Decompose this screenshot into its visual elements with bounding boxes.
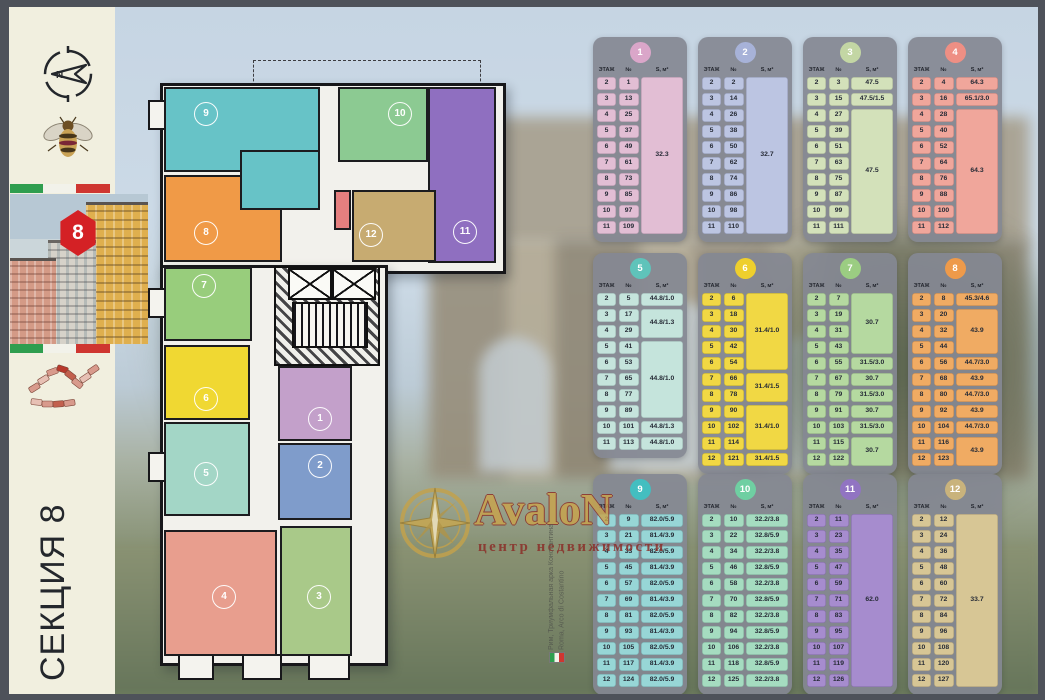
floor-cell: 3 xyxy=(702,530,721,543)
apartment-number-cell: 106 xyxy=(724,642,744,655)
floor-cell: 2 xyxy=(702,514,721,527)
header-num: № xyxy=(934,282,954,290)
apartment-number-cell: 97 xyxy=(619,205,639,218)
floor-cell: 5 xyxy=(912,341,931,354)
floor-cell: 8 xyxy=(702,389,721,402)
apartment-number-cell: 93 xyxy=(619,626,639,639)
area-cell: 33.7 xyxy=(956,514,998,687)
photo-caption: Рим, Триумфальная арка Константина Roma,… xyxy=(547,440,568,650)
apartment-number-cell: 37 xyxy=(619,125,639,138)
header-area: S, м² xyxy=(746,66,788,74)
area-cell: 32.8/5.9 xyxy=(746,658,788,671)
apartment-number-cell: 115 xyxy=(829,437,849,450)
table-header: ЭТАЖ№S, м² xyxy=(912,503,998,511)
sidebar: N 8 xyxy=(9,7,115,694)
apartment-number-cell: 103 xyxy=(829,421,849,434)
apartment-number-cell: 8 xyxy=(934,293,954,306)
table-header: ЭТАЖ№S, м² xyxy=(807,503,893,511)
area-cell: 44.7/3.0 xyxy=(956,357,998,370)
apartment-number-cell: 107 xyxy=(829,642,849,655)
caption-line-ru: Рим, Триумфальная арка Константина xyxy=(547,440,558,650)
apartment-number-cell: 32 xyxy=(934,325,954,338)
floor-cell: 10 xyxy=(702,642,721,655)
apartment-number-cell: 47 xyxy=(829,562,849,575)
floor-cell: 11 xyxy=(702,658,721,671)
apartment-number-cell: 39 xyxy=(829,125,849,138)
floor-cell: 6 xyxy=(597,578,616,591)
apartment-7-number: 7 xyxy=(192,274,216,298)
area-column: 32.3 xyxy=(641,77,683,237)
area-cell: 32.2/3.8 xyxy=(746,578,788,591)
apartment-number-cell: 89 xyxy=(619,405,639,418)
floor-cell: 7 xyxy=(807,157,826,170)
table-number-badge: 11 xyxy=(840,479,861,500)
number-column: 517294153657789101113 xyxy=(619,293,639,453)
apartment-number-cell: 80 xyxy=(934,389,954,402)
number-column: 1022344658708294106118125 xyxy=(724,514,744,690)
floor-cell: 10 xyxy=(807,642,826,655)
floor-cell: 7 xyxy=(702,157,721,170)
table-header: ЭТАЖ№S, м² xyxy=(702,503,788,511)
table-body: 2345678910111271931435567799110311512230… xyxy=(807,293,893,469)
area-cell: 31.5/3.0 xyxy=(851,389,893,402)
floor-cell: 12 xyxy=(912,674,931,687)
apartment-number-cell: 2 xyxy=(724,77,744,90)
header-area: S, м² xyxy=(746,282,788,290)
header-floor: ЭТАЖ xyxy=(702,282,721,290)
floor-column: 23456789101112 xyxy=(912,293,931,469)
floor-cell: 4 xyxy=(912,109,931,122)
apartment-number-cell: 79 xyxy=(829,389,849,402)
floor-cell: 2 xyxy=(597,514,616,527)
apartment-number-cell: 51 xyxy=(829,141,849,154)
apartment-10-area xyxy=(338,87,428,162)
number-column: 31527395163758799111 xyxy=(829,77,849,237)
apartment-number-cell: 86 xyxy=(724,189,744,202)
area-cell: 82.0/5.9 xyxy=(641,514,683,527)
floor-cell: 3 xyxy=(597,93,616,106)
floor-column: 234567891011 xyxy=(702,77,721,237)
floor-cell: 4 xyxy=(702,325,721,338)
apartment-3-number: 3 xyxy=(307,585,331,609)
apartment-number-cell: 36 xyxy=(934,546,954,559)
area-cell: 44.8/1.0 xyxy=(641,437,683,450)
apartment-number-cell: 40 xyxy=(934,125,954,138)
floor-cell: 10 xyxy=(807,205,826,218)
apartment-number-cell: 49 xyxy=(619,141,639,154)
area-cell: 81.4/3.9 xyxy=(641,658,683,671)
apartment-number-cell: 21 xyxy=(619,530,639,543)
apartment-number-cell: 34 xyxy=(724,546,744,559)
header-area: S, м² xyxy=(746,503,788,511)
area-cell: 44.8/1.3 xyxy=(641,421,683,434)
apartment-number-cell: 74 xyxy=(724,173,744,186)
apartment-number-cell: 31 xyxy=(829,325,849,338)
floor-cell: 6 xyxy=(702,141,721,154)
svg-text:N: N xyxy=(56,70,63,81)
area-cell: 81.4/3.9 xyxy=(641,594,683,607)
area-cell: 44.8/1.0 xyxy=(641,341,683,418)
apartment-number-cell: 53 xyxy=(619,357,639,370)
header-area: S, м² xyxy=(956,282,998,290)
floor-cell: 7 xyxy=(597,373,616,386)
floor-cell: 3 xyxy=(702,309,721,322)
apartment-11-number: 11 xyxy=(453,220,477,244)
floor-cell: 9 xyxy=(597,405,616,418)
floor-cell: 8 xyxy=(597,610,616,623)
header-floor: ЭТАЖ xyxy=(702,503,721,511)
apartment-number-cell: 114 xyxy=(724,437,744,450)
floor-cell: 6 xyxy=(912,357,931,370)
floor-cell: 3 xyxy=(912,309,931,322)
floor-cell: 8 xyxy=(807,610,826,623)
elevator-shaft xyxy=(332,268,376,300)
area-cell: 32.8/5.9 xyxy=(746,530,788,543)
floor-column: 23456789101112 xyxy=(912,514,931,690)
area-column: 32.2/3.832.8/5.932.2/3.832.8/5.932.2/3.8… xyxy=(746,514,788,690)
floor-cell: 3 xyxy=(597,309,616,322)
apartment-number-cell: 127 xyxy=(934,674,954,687)
floor-cell: 4 xyxy=(912,546,931,559)
floor-cell: 5 xyxy=(807,125,826,138)
apartment-number-cell: 71 xyxy=(829,594,849,607)
apartment-number-cell: 113 xyxy=(619,437,639,450)
apartment-table-8: 8ЭТАЖ№S, м²23456789101112820324456688092… xyxy=(908,253,1002,474)
apartment-number-cell: 22 xyxy=(724,530,744,543)
header-floor: ЭТАЖ xyxy=(912,503,931,511)
floor-cell: 4 xyxy=(912,325,931,338)
floor-cell: 4 xyxy=(597,546,616,559)
apartment-number-cell: 41 xyxy=(619,341,639,354)
area-cell: 64.3 xyxy=(956,109,998,234)
floor-column: 234567891011 xyxy=(597,293,616,453)
area-cell: 65.1/3.0 xyxy=(956,93,998,106)
area-column: 45.3/4.643.944.7/3.043.944.7/3.043.944.7… xyxy=(956,293,998,469)
floor-cell: 2 xyxy=(702,77,721,90)
bee-icon xyxy=(42,115,94,163)
area-cell: 32.2/3.8 xyxy=(746,674,788,687)
apartment-number-cell: 100 xyxy=(934,205,954,218)
floor-cell: 3 xyxy=(807,309,826,322)
area-cell: 82.0/5.9 xyxy=(641,642,683,655)
frame-right xyxy=(1038,0,1045,700)
floor-cell: 4 xyxy=(702,546,721,559)
area-cell: 43.9 xyxy=(956,437,998,466)
floor-cell: 3 xyxy=(597,530,616,543)
area-column: 31.4/1.031.4/1.531.4/1.031.4/1.5 xyxy=(746,293,788,469)
apartment-number-cell: 15 xyxy=(829,93,849,106)
area-cell: 47.5 xyxy=(851,77,893,90)
table-header: ЭТАЖ№S, м² xyxy=(807,66,893,74)
floor-cell: 9 xyxy=(912,405,931,418)
apartment-10-number: 10 xyxy=(388,102,412,126)
floor-cell: 4 xyxy=(597,325,616,338)
header-area: S, м² xyxy=(851,503,893,511)
apartment-table-2: 2ЭТАЖ№S, м²23456789101121426385062748698… xyxy=(698,37,792,242)
floor-cell: 5 xyxy=(597,562,616,575)
apartment-number-cell: 52 xyxy=(934,141,954,154)
header-area: S, м² xyxy=(851,282,893,290)
area-cell: 45.3/4.6 xyxy=(956,293,998,306)
floor-cell: 8 xyxy=(597,389,616,402)
apartment-number-cell: 120 xyxy=(934,658,954,671)
floor-cell: 10 xyxy=(702,421,721,434)
apartment-number-cell: 102 xyxy=(724,421,744,434)
floor-cell: 10 xyxy=(807,421,826,434)
arch-opening-left xyxy=(479,337,551,472)
apartment-number-cell: 35 xyxy=(829,546,849,559)
apartment-number-cell: 82 xyxy=(724,610,744,623)
header-area: S, м² xyxy=(641,503,683,511)
floor-cell: 10 xyxy=(912,205,931,218)
apartment-number-cell: 101 xyxy=(619,421,639,434)
apartment-number-cell: 23 xyxy=(829,530,849,543)
header-area: S, м² xyxy=(641,282,683,290)
apartment-number-cell: 76 xyxy=(934,173,954,186)
apartment-number-cell: 117 xyxy=(619,658,639,671)
frame-left xyxy=(0,0,9,700)
number-column: 921334557698193105117124 xyxy=(619,514,639,690)
table-body: 2345678910113152739516375879911147.547.5… xyxy=(807,77,893,237)
apartment-number-cell: 16 xyxy=(934,93,954,106)
table-number-badge: 12 xyxy=(945,479,966,500)
elevator-shaft xyxy=(288,268,332,300)
area-cell: 32.8/5.9 xyxy=(746,594,788,607)
apartment-12-number: 12 xyxy=(359,223,383,247)
floor-cell: 6 xyxy=(702,578,721,591)
frame-bottom xyxy=(0,694,1045,700)
apartment-number-cell: 14 xyxy=(724,93,744,106)
apartment-number-cell: 30 xyxy=(724,325,744,338)
table-header: ЭТАЖ№S, м² xyxy=(807,282,893,290)
area-cell: 82.0/5.9 xyxy=(641,674,683,687)
floor-cell: 5 xyxy=(807,562,826,575)
floor-cell: 9 xyxy=(912,189,931,202)
floor-cell: 10 xyxy=(597,421,616,434)
apartment-number-cell: 29 xyxy=(619,325,639,338)
apartment-8-number: 8 xyxy=(194,221,218,245)
number-column: 1123354759718395107119126 xyxy=(829,514,849,690)
apartment-number-cell: 118 xyxy=(724,658,744,671)
apartment-number-cell: 95 xyxy=(829,626,849,639)
header-floor: ЭТАЖ xyxy=(807,503,826,511)
building-pink xyxy=(10,258,56,344)
floor-cell: 8 xyxy=(912,389,931,402)
apartment-number-cell: 27 xyxy=(829,109,849,122)
number-column: 416284052647688100112 xyxy=(934,77,954,237)
table-header: ЭТАЖ№S, м² xyxy=(597,66,683,74)
floor-cell: 11 xyxy=(912,658,931,671)
apartment-number-cell: 57 xyxy=(619,578,639,591)
italy-flag-bottom xyxy=(10,344,110,353)
floor-cell: 7 xyxy=(702,594,721,607)
apartment-4-number: 4 xyxy=(212,585,236,609)
apartment-number-cell: 87 xyxy=(829,189,849,202)
floor-cell: 4 xyxy=(702,109,721,122)
apartment-number-cell: 125 xyxy=(724,674,744,687)
header-num: № xyxy=(724,282,744,290)
floor-cell: 9 xyxy=(912,626,931,639)
header-num: № xyxy=(619,282,639,290)
area-column: 62.0 xyxy=(851,514,893,690)
apartment-number-cell: 75 xyxy=(829,173,849,186)
floor-cell: 7 xyxy=(912,594,931,607)
apartment-9-area xyxy=(240,150,320,210)
apartment-number-cell: 99 xyxy=(829,205,849,218)
floor-cell: 3 xyxy=(702,93,721,106)
header-num: № xyxy=(724,66,744,74)
apartment-number-cell: 94 xyxy=(724,626,744,639)
apartment-number-cell: 69 xyxy=(619,594,639,607)
apartment-number-cell: 98 xyxy=(724,205,744,218)
apartment-number-cell: 72 xyxy=(934,594,954,607)
floor-column: 23456789101112 xyxy=(702,514,721,690)
area-cell: 44.7/3.0 xyxy=(956,389,998,402)
floor-cell: 8 xyxy=(807,389,826,402)
table-number-badge: 9 xyxy=(630,479,651,500)
area-cell: 82.0/5.9 xyxy=(641,610,683,623)
floor-cell: 10 xyxy=(912,642,931,655)
area-cell: 43.9 xyxy=(956,373,998,386)
area-cell: 30.7 xyxy=(851,405,893,418)
floor-cell: 8 xyxy=(702,173,721,186)
apartment-number-cell: 56 xyxy=(934,357,954,370)
floor-cell: 5 xyxy=(912,125,931,138)
table-body: 2345678910111132537496173859710932.3 xyxy=(597,77,683,237)
floor-column: 23456789101112 xyxy=(807,293,826,469)
floor-cell: 2 xyxy=(807,514,826,527)
apartment-number-cell: 67 xyxy=(829,373,849,386)
header-area: S, м² xyxy=(851,66,893,74)
floor-cell: 8 xyxy=(597,173,616,186)
area-cell: 47.5 xyxy=(851,109,893,234)
table-header: ЭТАЖ№S, м² xyxy=(702,66,788,74)
apartment-number-cell: 90 xyxy=(724,405,744,418)
floor-cell: 9 xyxy=(702,189,721,202)
floor-cell: 11 xyxy=(807,221,826,234)
apartment-number-cell: 61 xyxy=(619,157,639,170)
floor-cell: 12 xyxy=(597,674,616,687)
table-body: 2345678910111261830425466789010211412131… xyxy=(702,293,788,469)
number-column: 21426385062748698110 xyxy=(724,77,744,237)
area-cell: 32.8/5.9 xyxy=(746,626,788,639)
area-cell: 82.0/5.9 xyxy=(641,578,683,591)
floor-column: 234567891011 xyxy=(912,77,931,237)
floor-cell: 4 xyxy=(597,109,616,122)
floor-cell: 5 xyxy=(702,125,721,138)
area-cell: 31.4/1.5 xyxy=(746,453,788,466)
floor-column: 234567891011 xyxy=(807,77,826,237)
floor-cell: 10 xyxy=(597,205,616,218)
apartment-number-cell: 26 xyxy=(724,109,744,122)
apartment-number-cell: 12 xyxy=(934,514,954,527)
table-body: 2345678910111282032445668809210411612345… xyxy=(912,293,998,469)
apartment-number-cell: 123 xyxy=(934,453,954,466)
floor-cell: 10 xyxy=(912,421,931,434)
apartment-number-cell: 18 xyxy=(724,309,744,322)
floor-cell: 8 xyxy=(702,610,721,623)
floor-cell: 9 xyxy=(807,189,826,202)
apartment-number-cell: 73 xyxy=(619,173,639,186)
section-title: СЕКЦИЯ 8 xyxy=(35,421,72,681)
header-floor: ЭТАЖ xyxy=(597,66,616,74)
apartment-number-cell: 3 xyxy=(829,77,849,90)
floor-cell: 12 xyxy=(702,453,721,466)
table-header: ЭТАЖ№S, м² xyxy=(597,503,683,511)
table-body: 2345678910111212243648607284961081201273… xyxy=(912,514,998,690)
table-number-badge: 4 xyxy=(945,42,966,63)
table-number-badge: 10 xyxy=(735,479,756,500)
floor-cell: 5 xyxy=(807,341,826,354)
area-cell: 43.9 xyxy=(956,309,998,354)
header-num: № xyxy=(934,503,954,511)
caption-line-it: Roma, Arco di Costantino xyxy=(558,440,569,650)
number-column: 11325374961738597109 xyxy=(619,77,639,237)
area-cell: 64.3 xyxy=(956,77,998,90)
apartment-number-cell: 38 xyxy=(724,125,744,138)
table-body: 2345678910112142638506274869811032.7 xyxy=(702,77,788,237)
floor-cell: 6 xyxy=(702,357,721,370)
floor-cell: 6 xyxy=(912,578,931,591)
floor-column: 23456789101112 xyxy=(702,293,721,469)
apartment-number-cell: 108 xyxy=(934,642,954,655)
apartment-number-cell: 46 xyxy=(724,562,744,575)
apartment-number-cell: 13 xyxy=(619,93,639,106)
header-area: S, м² xyxy=(956,503,998,511)
apartment-number-cell: 55 xyxy=(829,357,849,370)
floor-cell: 12 xyxy=(702,674,721,687)
apartment-number-cell: 20 xyxy=(934,309,954,322)
area-cell: 32.3 xyxy=(641,77,683,234)
floor-cell: 6 xyxy=(597,141,616,154)
floor-cell: 9 xyxy=(702,626,721,639)
apartment-number-cell: 91 xyxy=(829,405,849,418)
apartment-number-cell: 62 xyxy=(724,157,744,170)
apartment-number-cell: 28 xyxy=(934,109,954,122)
floor-cell: 2 xyxy=(807,77,826,90)
floor-cell: 7 xyxy=(912,157,931,170)
table-number-badge: 2 xyxy=(735,42,756,63)
floor-cell: 11 xyxy=(597,658,616,671)
apartment-number-cell: 63 xyxy=(829,157,849,170)
apartment-table-4: 4ЭТАЖ№S, м²23456789101141628405264768810… xyxy=(908,37,1002,242)
floor-cell: 9 xyxy=(807,405,826,418)
apartment-number-cell: 59 xyxy=(829,578,849,591)
header-floor: ЭТАЖ xyxy=(912,282,931,290)
area-column: 82.0/5.981.4/3.982.0/5.981.4/3.982.0/5.9… xyxy=(641,514,683,690)
area-cell: 31.5/3.0 xyxy=(851,357,893,370)
number-column: 618304254667890102114121 xyxy=(724,293,744,469)
floor-cell: 8 xyxy=(912,610,931,623)
table-number-badge: 8 xyxy=(945,258,966,279)
apartment-table-1: 1ЭТАЖ№S, м²23456789101111325374961738597… xyxy=(593,37,687,242)
floor-cell: 4 xyxy=(807,109,826,122)
floor-cell: 9 xyxy=(702,405,721,418)
area-column: 44.8/1.044.8/1.344.8/1.044.8/1.344.8/1.0 xyxy=(641,293,683,453)
floor-cell: 12 xyxy=(807,453,826,466)
compass-north-icon: N xyxy=(39,45,97,103)
area-column: 30.731.5/3.030.731.5/3.030.731.5/3.030.7 xyxy=(851,293,893,469)
area-cell: 62.0 xyxy=(851,514,893,687)
apartment-9-number: 9 xyxy=(194,102,218,126)
building-render-photo: 8 xyxy=(10,194,148,344)
apartment-1-number: 1 xyxy=(308,407,332,431)
apartment-table-11: 11ЭТАЖ№S, м²2345678910111211233547597183… xyxy=(803,474,897,695)
apartment-number-cell: 121 xyxy=(724,453,744,466)
italy-flag-small-icon xyxy=(549,652,565,663)
apartment-number-cell: 58 xyxy=(724,578,744,591)
table-body: 23456789101141628405264768810011264.365.… xyxy=(912,77,998,237)
